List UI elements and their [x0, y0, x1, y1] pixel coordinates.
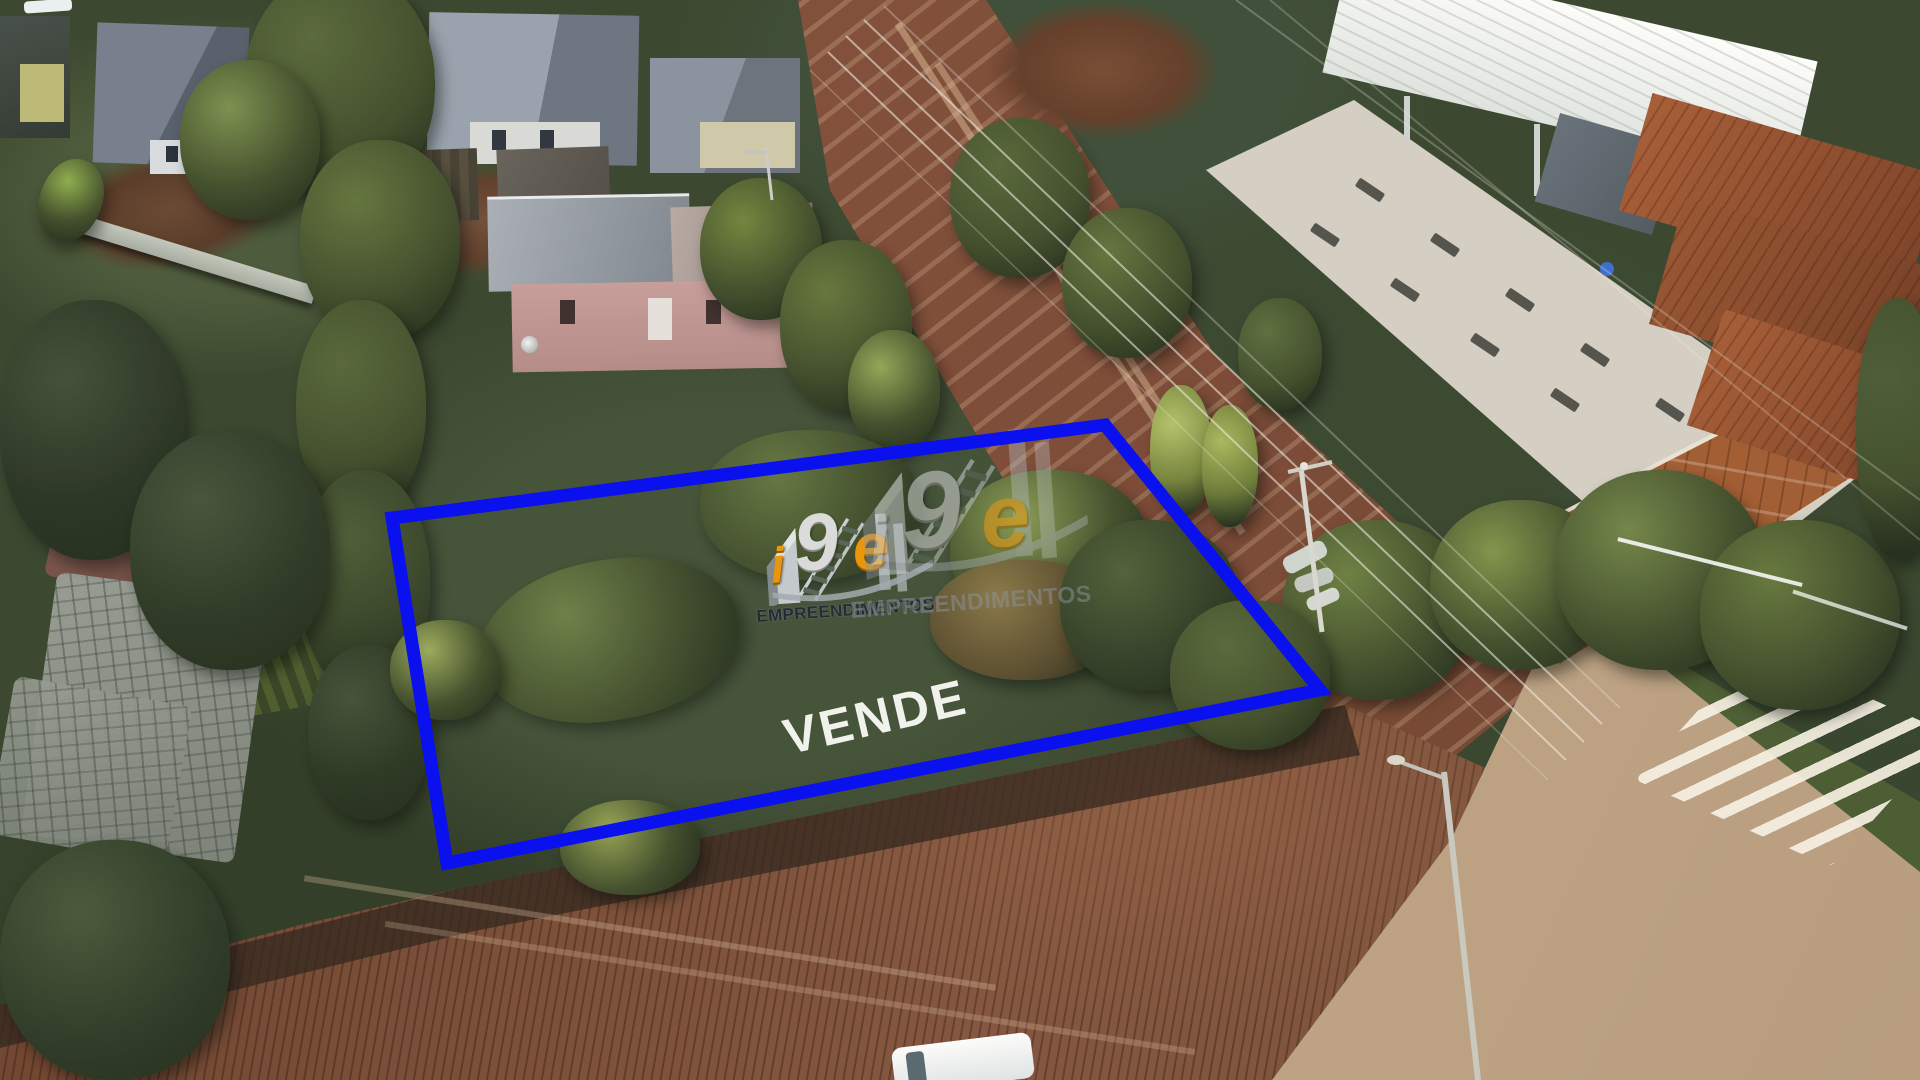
lot-boundary-overlay	[0, 0, 1920, 1080]
lot-boundary	[392, 425, 1320, 863]
aerial-photo-stage: i 9 e EMPREENDIMENTOS i 9 e EMPRE	[0, 0, 1920, 1080]
